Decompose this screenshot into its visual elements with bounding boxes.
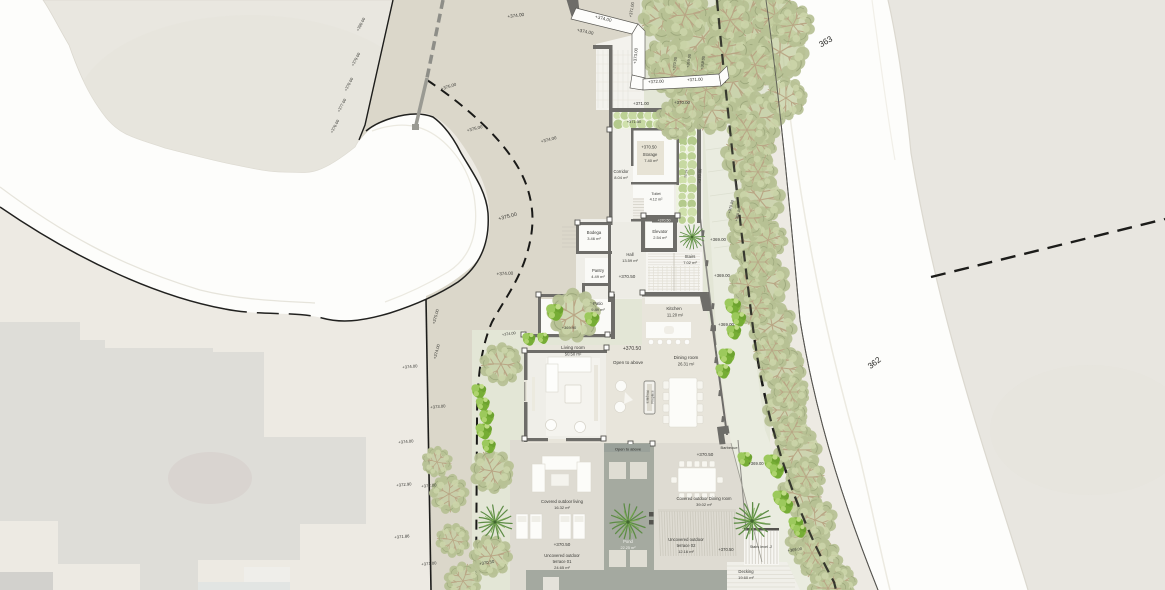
- svg-text:+370.50: +370.50: [697, 452, 714, 457]
- svg-text:+369.00: +369.00: [748, 461, 764, 466]
- svg-text:9.49 m²: 9.49 m²: [591, 307, 605, 312]
- svg-text:Bodega: Bodega: [587, 230, 602, 235]
- svg-text:terrace 01: terrace 01: [553, 559, 573, 564]
- svg-text:Stairs level -2: Stairs level -2: [750, 545, 772, 549]
- svg-text:Fireplace: Fireplace: [651, 390, 655, 403]
- svg-text:+369.00: +369.00: [718, 322, 735, 327]
- svg-text:7.02 m²: 7.02 m²: [683, 260, 697, 265]
- svg-text:Stairs: Stairs: [685, 254, 696, 259]
- svg-text:3.46 m²: 3.46 m²: [587, 236, 601, 241]
- svg-text:+370.50: +370.50: [641, 145, 657, 150]
- svg-text:Decking: Decking: [738, 569, 754, 574]
- svg-text:26.31 m²: 26.31 m²: [678, 362, 695, 367]
- svg-text:Dining room: Dining room: [674, 355, 699, 360]
- svg-text:4.49 m²: 4.49 m²: [591, 274, 605, 279]
- svg-text:Living room: Living room: [561, 345, 585, 350]
- svg-text:24.65 m²: 24.65 m²: [554, 565, 570, 570]
- svg-text:Elevator: Elevator: [652, 229, 668, 234]
- svg-text:+370.50: +370.50: [619, 274, 636, 279]
- svg-text:16.32 m²: 16.32 m²: [554, 505, 570, 510]
- svg-text:50.50 m²: 50.50 m²: [565, 352, 582, 357]
- svg-text:Uncovered outdoor: Uncovered outdoor: [668, 537, 704, 542]
- svg-text:terrace 02: terrace 02: [677, 543, 697, 548]
- svg-text:Barbecue: Barbecue: [720, 445, 738, 450]
- svg-text:+370.50: +370.50: [554, 542, 571, 547]
- svg-text:Kitchen: Kitchen: [666, 306, 682, 311]
- svg-text:19.60 m²: 19.60 m²: [738, 575, 754, 580]
- svg-text:Corridor: Corridor: [613, 169, 629, 174]
- svg-text:+372.00: +372.00: [648, 79, 665, 85]
- svg-text:+374.00: +374.00: [496, 271, 513, 277]
- svg-text:7.40 m²: 7.40 m²: [644, 158, 658, 163]
- svg-text:Toilet: Toilet: [651, 191, 661, 196]
- svg-text:Patio: Patio: [593, 301, 603, 306]
- svg-text:+370.50: +370.50: [718, 547, 734, 552]
- svg-text:Pantry: Pantry: [592, 268, 605, 273]
- svg-text:+370.00: +370.00: [697, 168, 703, 184]
- svg-text:+371.50: +371.50: [627, 119, 642, 124]
- svg-text:+370.00: +370.00: [674, 100, 691, 105]
- svg-text:+369.90: +369.90: [562, 325, 577, 330]
- svg-text:+369.00: +369.00: [710, 237, 727, 242]
- svg-text:22.25 m²: 22.25 m²: [621, 546, 637, 550]
- svg-text:2.54 m²: 2.54 m²: [653, 235, 667, 240]
- svg-text:11.20 m²: 11.20 m²: [667, 313, 684, 318]
- svg-text:Open to above: Open to above: [613, 360, 644, 365]
- svg-text:Fireplace: Fireplace: [646, 390, 650, 403]
- svg-text:Pond: Pond: [623, 539, 633, 544]
- svg-text:+370.50: +370.50: [657, 218, 670, 222]
- svg-text:Hall: Hall: [626, 252, 633, 257]
- svg-text:8.04 m²: 8.04 m²: [614, 175, 628, 180]
- svg-text:39.02 m²: 39.02 m²: [696, 502, 712, 507]
- svg-text:+369.00: +369.00: [714, 273, 731, 278]
- svg-text:12.16 m²: 12.16 m²: [678, 549, 694, 554]
- svg-text:4.12 m²: 4.12 m²: [650, 198, 664, 202]
- svg-text:13.59 m²: 13.59 m²: [622, 258, 638, 263]
- svg-text:Covered outdoor Dining room: Covered outdoor Dining room: [677, 496, 732, 501]
- svg-text:Covered outdoor living: Covered outdoor living: [541, 499, 584, 504]
- svg-text:Uncovered outdoor: Uncovered outdoor: [544, 553, 580, 558]
- svg-text:Open to above: Open to above: [615, 447, 642, 452]
- svg-text:+370.50: +370.50: [623, 346, 641, 352]
- svg-text:Storage: Storage: [643, 152, 658, 157]
- svg-text:+371.00: +371.00: [687, 77, 704, 83]
- svg-text:+371.00: +371.00: [633, 101, 650, 106]
